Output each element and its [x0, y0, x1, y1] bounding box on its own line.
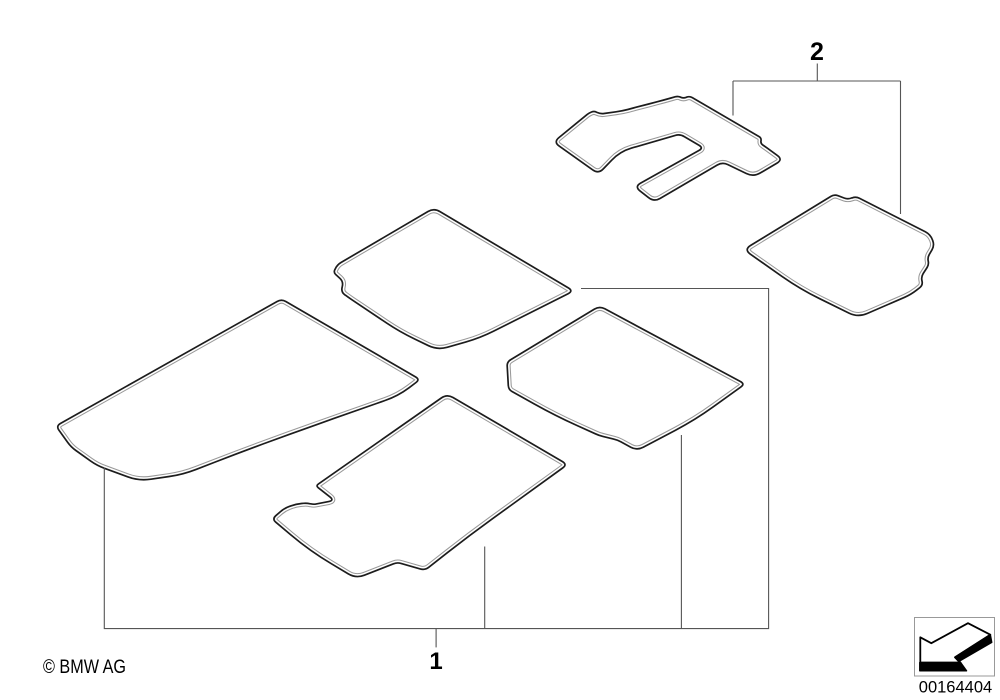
svg-text:© BMW AG: © BMW AG — [43, 657, 126, 678]
svg-text:00164404: 00164404 — [919, 679, 992, 697]
svg-text:2: 2 — [810, 38, 824, 66]
svg-text:1: 1 — [429, 648, 442, 675]
